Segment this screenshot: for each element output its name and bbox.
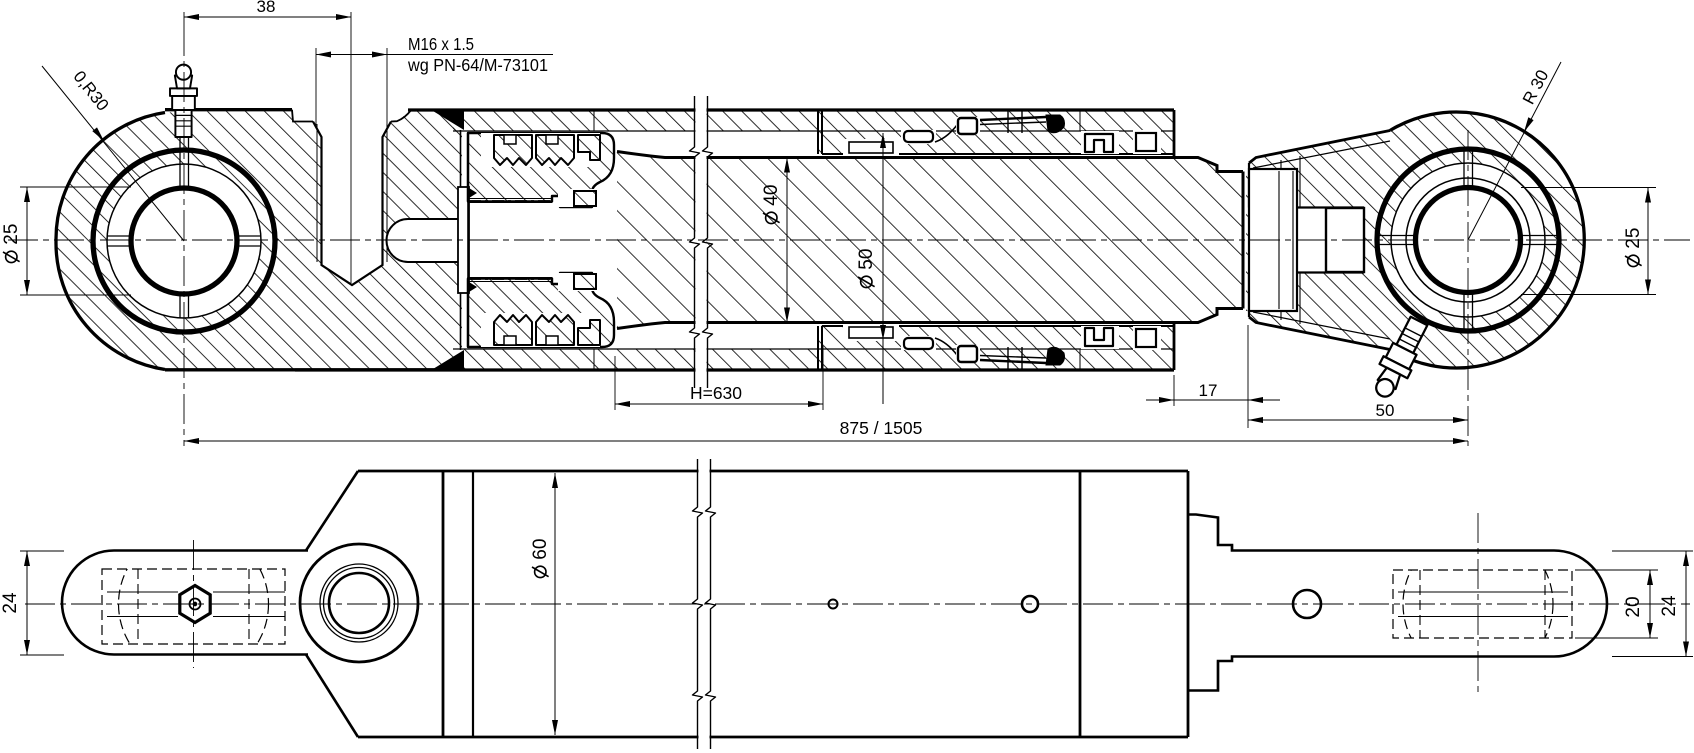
svg-text:24: 24: [0, 592, 21, 614]
svg-text:24: 24: [1659, 595, 1680, 617]
svg-text:38: 38: [257, 0, 276, 16]
svg-text:40: 40: [761, 185, 782, 206]
svg-text:25: 25: [1623, 228, 1644, 249]
svg-text:60: 60: [530, 539, 551, 560]
svg-text:25: 25: [1, 224, 22, 245]
svg-text:M16 x 1.5: M16 x 1.5: [408, 34, 474, 54]
svg-text:H=630: H=630: [690, 383, 742, 403]
svg-text:875 / 1505: 875 / 1505: [840, 418, 923, 438]
svg-text:wg PN-64/M-73101: wg PN-64/M-73101: [407, 55, 548, 75]
svg-text:20: 20: [1623, 596, 1644, 617]
svg-text:17: 17: [1199, 381, 1218, 400]
svg-text:50: 50: [856, 249, 877, 270]
svg-text:50: 50: [1376, 401, 1395, 420]
